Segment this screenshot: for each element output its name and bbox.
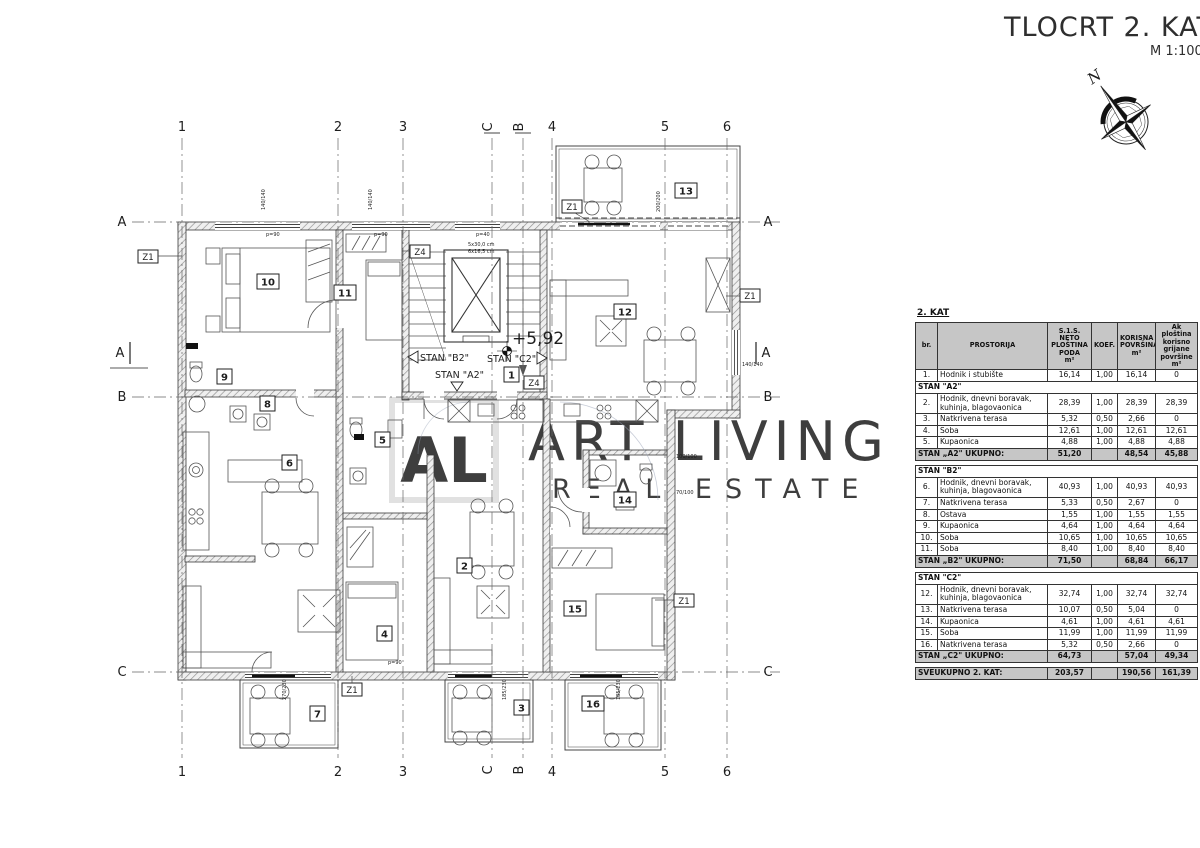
table-row-data: 3.Natkrivena terasa5,320,502,660 [916, 414, 1198, 426]
table-cell: 7. [916, 497, 938, 509]
table-cell: 28,39 [1048, 393, 1092, 413]
dim-label: 185/230 [502, 679, 508, 700]
room-number-label: 1 [508, 371, 515, 382]
table-cell: 4,64 [1156, 521, 1198, 533]
table-cell: 4,61 [1118, 616, 1156, 628]
room-number-8: 8 [260, 396, 275, 411]
table-cell: 48,54 [1118, 449, 1156, 461]
table-cell: 16,14 [1048, 370, 1092, 382]
table-cell: Kupaonica [938, 521, 1048, 533]
area-table: br.PROSTORIJAS.1.S. NETO PLOŠTINA PODA m… [915, 322, 1198, 680]
wall-fixture [354, 434, 364, 440]
table-cell: 1,00 [1092, 370, 1118, 382]
zone-label: Z4 [414, 248, 425, 258]
page: { "title": {"main": "TLOCRT 2. KATA", "s… [0, 0, 1200, 848]
dim-label: 200/200 [656, 191, 662, 212]
table-row-section: STAN "C2" [916, 572, 1198, 584]
table-cell: 1,00 [1092, 521, 1118, 533]
room-number-6: 6 [282, 455, 297, 470]
dim-label: 70/100 [676, 490, 694, 496]
table-row-data: 7.Natkrivena terasa5,330,502,670 [916, 497, 1198, 509]
stair-note: 5x30,0 cm [468, 242, 495, 248]
table-cell: 5,04 [1118, 604, 1156, 616]
balconies [240, 680, 661, 750]
table-cell: 0,50 [1092, 604, 1118, 616]
table-cell: 161,39 [1156, 668, 1198, 680]
balcony-16 [565, 680, 661, 750]
grid-col-label: 6 [723, 120, 731, 135]
grid-row-label: C [763, 665, 772, 680]
stan-a2-label: STAN "A2" [435, 370, 484, 381]
table-cell: 0 [1156, 639, 1198, 651]
table-cell: 1,00 [1092, 425, 1118, 437]
room-number-label: 13 [679, 187, 693, 198]
table-cell: 2,66 [1118, 639, 1156, 651]
kitchen-room6 [183, 432, 302, 550]
table-row-data: 2.Hodnik, dnevni boravak, kuhinja, blago… [916, 393, 1198, 413]
table-row-data: 14.Kupaonica4,611,004,614,61 [916, 616, 1198, 628]
bed-room11 [366, 260, 402, 340]
grid-col-label: 3 [399, 765, 407, 780]
table-cell: Soba [938, 532, 1048, 544]
dim-label: 185/230 [616, 679, 622, 700]
table-cell: Natkrivena terasa [938, 604, 1048, 616]
table-cell: 1,00 [1092, 437, 1118, 449]
table-cell: 1,55 [1156, 509, 1198, 521]
table-cell: Natkrivena terasa [938, 414, 1048, 426]
table-cell: 1,55 [1048, 509, 1092, 521]
table-cell: 10,65 [1118, 532, 1156, 544]
compass-rose: N [1065, 52, 1170, 167]
table-cell: 11,99 [1156, 628, 1198, 640]
table-cell: 32,74 [1118, 584, 1156, 604]
table-cell: 2,66 [1118, 414, 1156, 426]
grid-col-label: 1 [178, 120, 186, 135]
table-cell: 12,61 [1118, 425, 1156, 437]
grid-col-label: 5 [661, 120, 669, 135]
table-cell: 10. [916, 532, 938, 544]
grid-col-label: C [481, 765, 496, 774]
table-cell: 66,17 [1156, 556, 1198, 568]
table-row-data: 6.Hodnik, dnevni boravak, kuhinja, blago… [916, 477, 1198, 497]
watermark-line2: REAL ESTATE [552, 474, 871, 505]
table-cell: Kupaonica [938, 616, 1048, 628]
room-number-11: 11 [334, 285, 356, 300]
table-cell: 4,61 [1156, 616, 1198, 628]
table-row-section: STAN "A2" [916, 381, 1198, 393]
grid-row-label: A [118, 215, 127, 230]
table-cell: 4,61 [1048, 616, 1092, 628]
room-number-1: 1 [504, 367, 519, 382]
table-cell: 8,40 [1048, 544, 1092, 556]
grid-row-label: B [764, 390, 773, 405]
room-number-label: 12 [618, 308, 632, 319]
table-row-total: STAN „A2" UKUPNO:51,2048,5445,88 [916, 449, 1198, 461]
sofa-lower-left [183, 586, 340, 668]
zone-label: Z1 [744, 292, 755, 302]
room-number-5: 5 [375, 432, 390, 447]
sofa-room2 [434, 578, 509, 664]
table-row-data: 12.Hodnik, dnevni boravak, kuhinja, blag… [916, 584, 1198, 604]
table-cell: 4. [916, 425, 938, 437]
room-number-label: 4 [381, 630, 388, 641]
table-cell: 13. [916, 604, 938, 616]
table-cell: 28,39 [1156, 393, 1198, 413]
table-cell: Hodnik i stubište [938, 370, 1048, 382]
table-cell: 57,04 [1118, 651, 1156, 663]
table-cell: 32,74 [1156, 584, 1198, 604]
table-cell: 16,14 [1118, 370, 1156, 382]
grid-col-label: 2 [334, 765, 342, 780]
elevator [444, 250, 508, 342]
table-cell: 9. [916, 521, 938, 533]
table-cell: 1,00 [1092, 544, 1118, 556]
table-row-data: 16.Natkrivena terasa5,320,502,660 [916, 639, 1198, 651]
table-cell [1092, 651, 1118, 663]
storage-room8 [254, 414, 270, 430]
area-table-head: br.PROSTORIJAS.1.S. NETO PLOŠTINA PODA m… [916, 323, 1198, 370]
table-cell: 10,65 [1048, 532, 1092, 544]
table-cell: STAN "C2" [916, 572, 1198, 584]
table-cell: 4,88 [1048, 437, 1092, 449]
room-number-9: 9 [217, 369, 232, 384]
table-cell [1092, 556, 1118, 568]
table-row-data: 10.Soba10,651,0010,6510,65 [916, 532, 1198, 544]
table-cell: Hodnik, dnevni boravak, kuhinja, blagova… [938, 477, 1048, 497]
table-cell: 1,00 [1092, 628, 1118, 640]
table-cell: 1,00 [1092, 584, 1118, 604]
table-row-data: 11.Soba8,401,008,408,40 [916, 544, 1198, 556]
dim-label: p=90 [388, 660, 402, 666]
zone-label: Z1 [566, 203, 577, 213]
table-cell: Hodnik, dnevni boravak, kuhinja, blagova… [938, 584, 1048, 604]
stair-note: 6x16,5 cm [468, 249, 495, 255]
table-cell: 40,93 [1156, 477, 1198, 497]
zone-z1: Z1 [655, 594, 694, 607]
table-cell: 12,61 [1156, 425, 1198, 437]
room-number-label: 14 [618, 496, 632, 507]
table-cell: 3. [916, 414, 938, 426]
dim-label: 140/140 [368, 189, 374, 210]
table-cell: 0,50 [1092, 414, 1118, 426]
room-number-label: 8 [264, 400, 271, 411]
table-cell: 32,74 [1048, 584, 1092, 604]
dining-room6 [262, 479, 318, 557]
grid-col-label: C [481, 122, 496, 131]
room-number-13: 13 [675, 183, 697, 198]
room-number-7: 7 [310, 706, 325, 721]
dim-label: p=90 [374, 232, 388, 238]
table-cell: 1,00 [1092, 477, 1118, 497]
dim-label: 140/140 [742, 362, 763, 368]
table-cell: 4,64 [1118, 521, 1156, 533]
stan-b2-label: STAN "B2" [420, 353, 469, 364]
zone-label: Z4 [528, 379, 539, 389]
table-cell: 15. [916, 628, 938, 640]
compass-north-label: N [1083, 65, 1106, 88]
room-number-label: 16 [586, 700, 600, 711]
table-column-header: S.1.S. NETO PLOŠTINA PODA m² [1048, 323, 1092, 370]
table-cell: 51,20 [1048, 449, 1092, 461]
zone-z1: Z1 [726, 289, 760, 302]
table-column-header: KORISNA POVRŠINA m² [1118, 323, 1156, 370]
table-cell: 10,65 [1156, 532, 1198, 544]
table-cell: STAN „C2" UKUPNO: [916, 651, 1048, 663]
table-cell: 5,32 [1048, 639, 1092, 651]
table-cell: 5. [916, 437, 938, 449]
grid-row-label: C [117, 665, 126, 680]
room-number-12: 12 [614, 304, 636, 319]
table-row-data: 5.Kupaonica4,881,004,884,88 [916, 437, 1198, 449]
watermark-logo: AL [400, 424, 488, 497]
table-row-data: 4.Soba12,611,0012,6112,61 [916, 425, 1198, 437]
table-column-header: KOEF. [1092, 323, 1118, 370]
table-cell: 49,34 [1156, 651, 1198, 663]
table-cell: 71,50 [1048, 556, 1092, 568]
table-cell: STAN "A2" [916, 381, 1198, 393]
grid-col-label: 3 [399, 120, 407, 135]
table-cell [1092, 668, 1118, 680]
table-cell: 64,73 [1048, 651, 1092, 663]
room-number-10: 10 [257, 274, 279, 289]
bed-room15 [552, 548, 664, 650]
sofa-room12 [550, 258, 730, 360]
section-marker: A [762, 346, 771, 361]
table-cell: STAN „B2" UKUPNO: [916, 556, 1048, 568]
room-number-label: 3 [518, 704, 525, 715]
room-number-4: 4 [377, 626, 392, 641]
grid-col-label: B [512, 766, 527, 775]
area-table-body: 1.Hodnik i stubište16,141,0016,140STAN "… [916, 370, 1198, 679]
table-row-data: 15.Soba11,991,0011,9911,99 [916, 628, 1198, 640]
room-number-label: 7 [314, 710, 321, 721]
table-cell: 28,39 [1118, 393, 1156, 413]
table-cell: 8,40 [1118, 544, 1156, 556]
table-cell: 8,40 [1156, 544, 1198, 556]
grid-row-label: B [118, 390, 127, 405]
room-number-label: 9 [221, 373, 228, 384]
table-cell: 0 [1156, 604, 1198, 616]
room-number-label: 11 [338, 289, 352, 300]
table-cell: 6. [916, 477, 938, 497]
table-cell: Kupaonica [938, 437, 1048, 449]
stan-c2-label: STAN "C2" [487, 354, 536, 365]
bed-room10 [206, 248, 330, 332]
table-cell: 0,50 [1092, 497, 1118, 509]
grid-col-label: B [512, 123, 527, 132]
table-cell: 11. [916, 544, 938, 556]
room-number-3: 3 [514, 700, 529, 715]
table-cell: 45,88 [1156, 449, 1198, 461]
terrace13-table [584, 155, 622, 215]
dim-label: 270/230 [282, 679, 288, 700]
terrace-13-outline [556, 146, 740, 222]
dim-label: 100/100 [676, 454, 697, 460]
table-cell: 4,88 [1118, 437, 1156, 449]
grid-row-label: A [764, 215, 773, 230]
table-cell: 12. [916, 584, 938, 604]
table-cell: 1,00 [1092, 616, 1118, 628]
grid-col-label: 5 [661, 765, 669, 780]
table-cell: 203,57 [1048, 668, 1092, 680]
table-cell: 11,99 [1048, 628, 1092, 640]
room-number-label: 5 [379, 436, 386, 447]
table-cell: 190,56 [1118, 668, 1156, 680]
table-cell: Ostava [938, 509, 1048, 521]
table-cell: 1. [916, 370, 938, 382]
table-cell: Natkrivena terasa [938, 639, 1048, 651]
table-header-row: br.PROSTORIJAS.1.S. NETO PLOŠTINA PODA m… [916, 323, 1198, 370]
table-cell: 0 [1156, 497, 1198, 509]
grid-col-label: 6 [723, 765, 731, 780]
table-cell: 0,50 [1092, 639, 1118, 651]
table-column-header: br. [916, 323, 938, 370]
room-number-label: 15 [568, 605, 582, 616]
table-cell: 4,88 [1156, 437, 1198, 449]
table-cell: Soba [938, 425, 1048, 437]
zone-z1: Z1 [138, 250, 182, 263]
table-row-total: STAN „C2" UKUPNO:64,7357,0449,34 [916, 651, 1198, 663]
table-cell: 16. [916, 639, 938, 651]
zone-z4: Z4 [524, 376, 544, 389]
table-cell: 5,32 [1048, 414, 1092, 426]
room-number-label: 10 [261, 278, 275, 289]
table-cell: 0 [1156, 370, 1198, 382]
table-cell: 4,64 [1048, 521, 1092, 533]
table-cell: 1,00 [1092, 393, 1118, 413]
table-caption: 2. KAT [917, 308, 949, 318]
table-cell [1092, 449, 1118, 461]
table-column-header: PROSTORIJA [938, 323, 1048, 370]
zone-label: Z1 [678, 597, 689, 607]
table-cell: 40,93 [1118, 477, 1156, 497]
table-cell: Natkrivena terasa [938, 497, 1048, 509]
table-cell: 14. [916, 616, 938, 628]
wall-fixture [186, 343, 198, 349]
elevation-label: +5,92 [512, 329, 564, 349]
room-number-14: 14 [614, 492, 636, 507]
table-cell: STAN „A2" UKUPNO: [916, 449, 1048, 461]
table-cell: 1,00 [1092, 509, 1118, 521]
table-row-data: 1.Hodnik i stubište16,141,0016,140 [916, 370, 1198, 382]
table-cell: 2,67 [1118, 497, 1156, 509]
table-cell: 8. [916, 509, 938, 521]
zone-label: Z1 [346, 686, 357, 696]
section-marker: A [116, 346, 125, 361]
room-number-label: 2 [461, 562, 468, 573]
table-row-data: 9.Kupaonica4,641,004,644,64 [916, 521, 1198, 533]
zone-label: Z1 [142, 253, 153, 263]
table-cell: 5,33 [1048, 497, 1092, 509]
grid-col-label: 4 [548, 765, 556, 780]
dim-label: p=90 [266, 232, 280, 238]
dim-label: p=40 [476, 232, 490, 238]
stan-b2-arrow-icon [408, 351, 418, 363]
table-cell: 2. [916, 393, 938, 413]
room-number-16: 16 [582, 696, 604, 711]
table-row-grand: SVEUKUPNO 2. KAT:203,57190,56161,39 [916, 668, 1198, 680]
grid-col-label: 1 [178, 765, 186, 780]
table-cell: Hodnik, dnevni boravak, kuhinja, blagova… [938, 393, 1048, 413]
table-cell: SVEUKUPNO 2. KAT: [916, 668, 1048, 680]
table-row-section: STAN "B2" [916, 465, 1198, 477]
table-cell: Soba [938, 544, 1048, 556]
room-number-2: 2 [457, 558, 472, 573]
table-cell: 40,93 [1048, 477, 1092, 497]
table-cell: STAN "B2" [916, 465, 1198, 477]
dining-room12 [644, 327, 696, 395]
table-column-header: Ak ploština korisno grijane površine m² [1156, 323, 1198, 370]
table-cell: 0 [1156, 414, 1198, 426]
table-cell: 1,55 [1118, 509, 1156, 521]
table-cell: 1,00 [1092, 532, 1118, 544]
table-cell: Soba [938, 628, 1048, 640]
table-row-data: 13.Natkrivena terasa10,070,505,040 [916, 604, 1198, 616]
table-row-total: STAN „B2" UKUPNO:71,5068,8466,17 [916, 556, 1198, 568]
table-cell: 12,61 [1048, 425, 1092, 437]
table-cell: 11,99 [1118, 628, 1156, 640]
table-cell: 10,07 [1048, 604, 1092, 616]
room-number-label: 6 [286, 459, 293, 470]
dim-label: 140/140 [261, 189, 267, 210]
table-cell: 68,84 [1118, 556, 1156, 568]
grid-col-label: 2 [334, 120, 342, 135]
stan-a2-arrow-icon [451, 382, 463, 391]
watermark-line1: ART LIVING [528, 410, 890, 473]
room-number-15: 15 [564, 601, 586, 616]
table-row-data: 8.Ostava1,551,001,551,55 [916, 509, 1198, 521]
grid-col-label: 4 [548, 120, 556, 135]
